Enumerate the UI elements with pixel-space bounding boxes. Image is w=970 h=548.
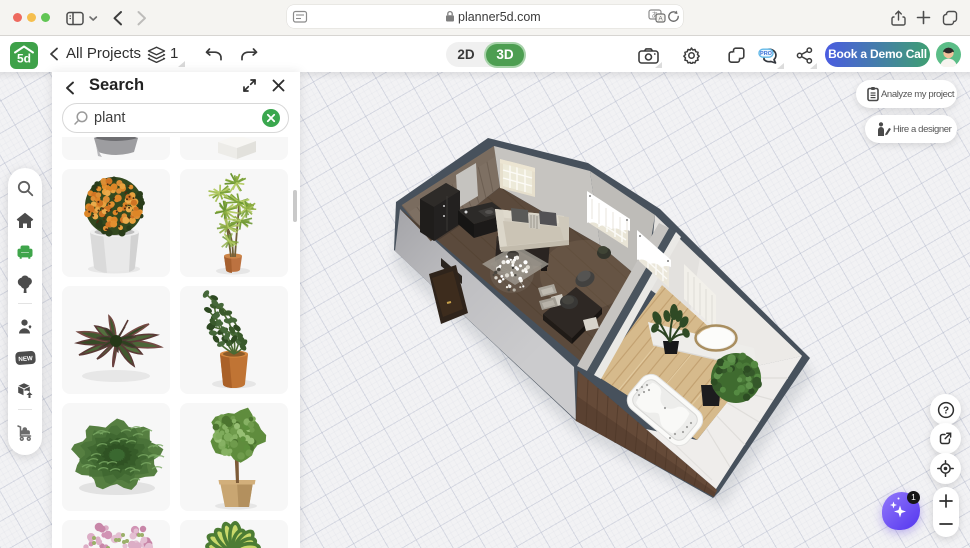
- svg-text:A: A: [658, 16, 663, 23]
- svg-text:?: ?: [942, 405, 948, 416]
- svg-text:5d: 5d: [17, 52, 31, 66]
- svg-text:PRO: PRO: [760, 51, 773, 57]
- svg-text:NEW: NEW: [18, 355, 33, 363]
